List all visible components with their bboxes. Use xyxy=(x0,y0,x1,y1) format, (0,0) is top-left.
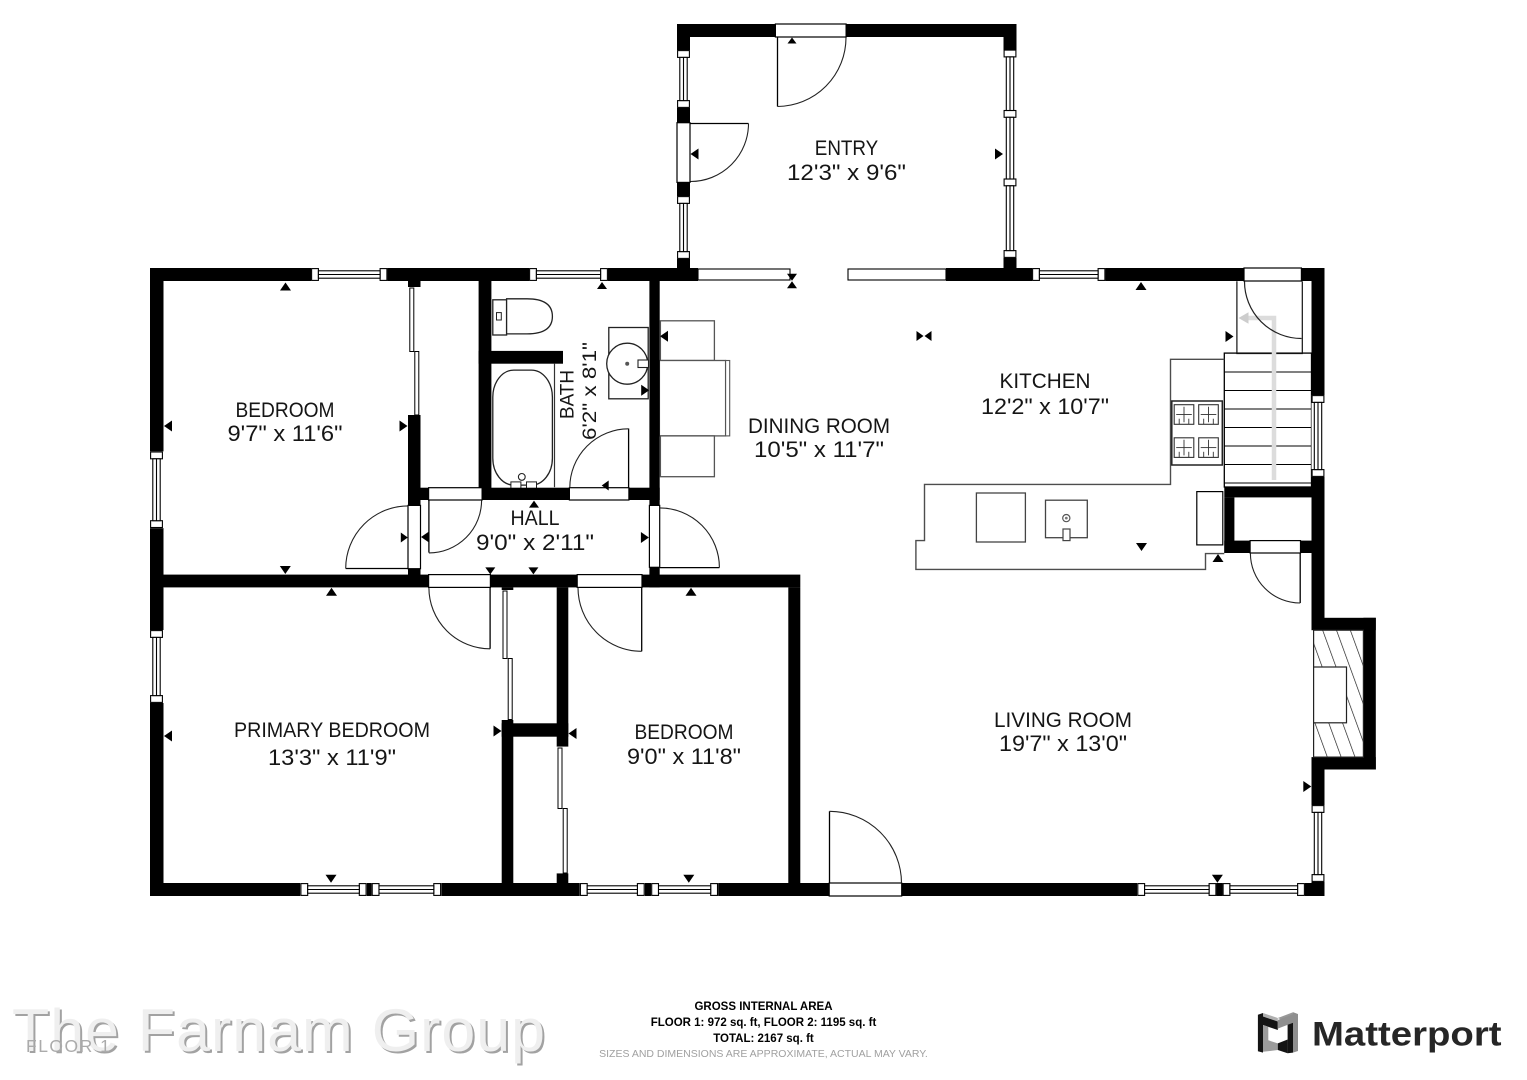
svg-text:FLOOR 1: FLOOR 1 xyxy=(26,1036,111,1056)
svg-text:9'7" x 11'6": 9'7" x 11'6" xyxy=(228,421,343,446)
svg-text:13'3" x 11'9": 13'3" x 11'9" xyxy=(268,745,396,770)
svg-text:19'7" x 13'0": 19'7" x 13'0" xyxy=(999,731,1127,756)
svg-text:TOTAL: 2167 sq. ft: TOTAL: 2167 sq. ft xyxy=(713,1033,814,1045)
svg-text:Matterport: Matterport xyxy=(1312,1015,1502,1053)
svg-text:GROSS INTERNAL AREA: GROSS INTERNAL AREA xyxy=(694,1001,832,1013)
svg-text:10'5" x 11'7": 10'5" x 11'7" xyxy=(754,437,884,462)
svg-text:9'0" x 2'11": 9'0" x 2'11" xyxy=(476,530,594,555)
svg-text:12'3" x 9'6": 12'3" x 9'6" xyxy=(787,160,906,185)
svg-text:6'2" x 8'1": 6'2" x 8'1" xyxy=(580,342,601,440)
svg-text:HALL: HALL xyxy=(511,506,560,530)
svg-text:ENTRY: ENTRY xyxy=(815,136,879,160)
svg-text:BEDROOM: BEDROOM xyxy=(236,398,335,422)
svg-text:9'0" x 11'8": 9'0" x 11'8" xyxy=(627,744,741,769)
svg-text:BATH: BATH xyxy=(558,370,579,419)
svg-text:KITCHEN: KITCHEN xyxy=(1000,369,1091,393)
svg-text:FLOOR 1: 972 sq. ft, FLOOR 2:: FLOOR 1: 972 sq. ft, FLOOR 2: 1195 sq. f… xyxy=(651,1017,877,1029)
svg-text:DINING ROOM: DINING ROOM xyxy=(748,414,890,438)
svg-text:BEDROOM: BEDROOM xyxy=(635,720,734,744)
svg-text:LIVING ROOM: LIVING ROOM xyxy=(994,708,1132,732)
svg-text:12'2" x 10'7": 12'2" x 10'7" xyxy=(981,394,1109,419)
svg-text:SIZES AND DIMENSIONS ARE APPRO: SIZES AND DIMENSIONS ARE APPROXIMATE, AC… xyxy=(599,1048,928,1060)
svg-text:PRIMARY BEDROOM: PRIMARY BEDROOM xyxy=(234,718,430,742)
